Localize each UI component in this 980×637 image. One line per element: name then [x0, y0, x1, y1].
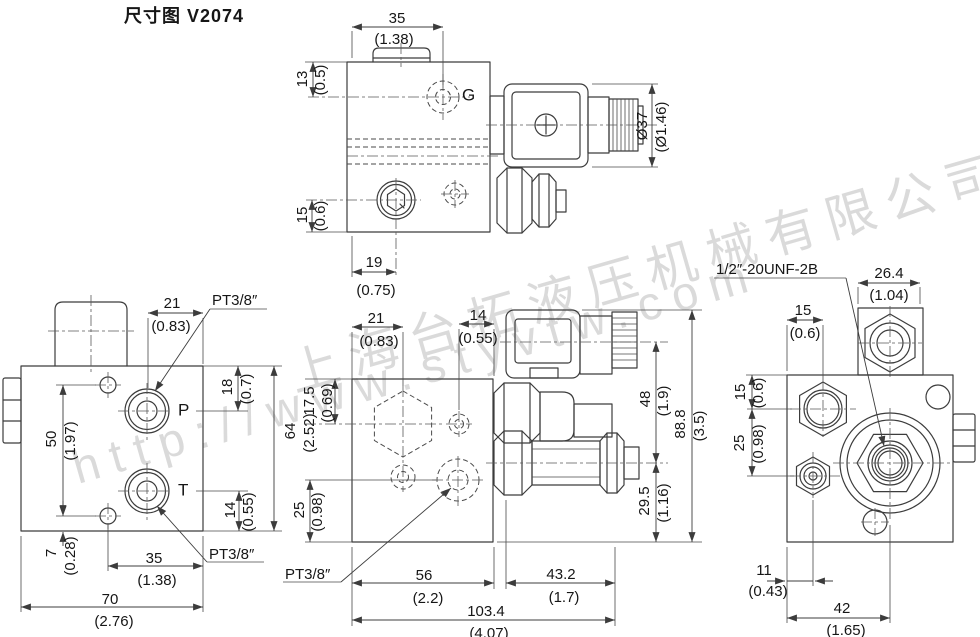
dim-front-7-mm: 7: [43, 549, 60, 557]
dimension-drawing-page: 上海台拓液压机械有限公司 http://www.styvtw.com 尺寸图 V…: [0, 0, 980, 637]
dim-top-15-in: (0.6): [312, 201, 329, 232]
dim-side-48-mm: 48: [637, 391, 654, 408]
dim-side-29-5-mm: 29.5: [636, 486, 653, 515]
cartridge-nuts-top-view: [497, 168, 566, 233]
dim-top-dia37-mm: Ø37: [634, 112, 651, 140]
thread-p-label: PT3/8″: [212, 292, 258, 309]
dim-end-26-4-in: (1.04): [869, 287, 908, 304]
coil-body-side: [494, 383, 612, 443]
dim-side-56-in: (2.2): [413, 590, 444, 607]
dim-end-15-top-in: (0.6): [790, 325, 821, 342]
end-view-coil-block: [858, 308, 923, 375]
dim-side-103-4-mm: 103.4: [467, 603, 505, 620]
corner-ear-circle: [926, 385, 950, 409]
dim-side-21-mm: 21: [368, 310, 385, 327]
dim-front-35-mm: 35: [146, 550, 163, 567]
dim-end-15-side-mm: 15: [732, 384, 749, 401]
dim-front-50-in: (1.97): [62, 421, 79, 460]
hex-plug-lower: [790, 452, 840, 498]
hex-plug-upper: [790, 380, 856, 440]
dim-end-25-mm: 25: [731, 435, 748, 452]
dim-end-15-side-in: (0.6): [750, 378, 767, 409]
dim-side-29-5-in: (1.16): [655, 483, 672, 522]
dim-side-14-mm: 14: [470, 307, 487, 324]
thread-side-port-label: PT3/8″: [285, 566, 331, 583]
dim-side-17-5-in: (0.69): [319, 383, 336, 422]
dim-top-19-mm: 19: [366, 254, 383, 271]
hidden-pilot-circle: [446, 411, 472, 437]
end-view-dimensions: 26.4 (1.04) 1/2″-20UNF-2B 15 (0.6) 15 (0…: [714, 261, 920, 637]
top-view-solenoid: [486, 84, 660, 233]
dim-top-15-mm: 15: [294, 207, 311, 224]
dim-side-17-5-mm: 17.5: [301, 386, 318, 415]
thread-t-label: PT3/8″: [209, 546, 255, 563]
top-view-body: [347, 43, 500, 232]
side-hex-plug-left: [3, 378, 21, 443]
dim-side-21-in: (0.83): [359, 333, 398, 350]
dim-front-14-mm: 14: [222, 502, 239, 519]
dim-side-56-mm: 56: [416, 567, 433, 584]
page-title: 尺寸图 V2074: [124, 5, 244, 26]
dim-front-35-in: (1.38): [137, 572, 176, 589]
dim-side-25-in: (0.98): [309, 492, 326, 531]
dim-side-88-8-mm: 88.8: [672, 409, 689, 438]
dim-side-48-in: (1.9): [655, 386, 672, 417]
dim-end-11-mm: 11: [756, 562, 772, 579]
dim-top-13-in: (0.5): [312, 65, 329, 96]
dim-top-35-mm: 35: [389, 10, 406, 27]
dim-side-14-in: (0.55): [458, 330, 497, 347]
dim-end-42-in: (1.65): [826, 622, 865, 637]
pilot-hidden-circle: [441, 180, 469, 208]
dim-top-35-in: (1.38): [374, 31, 413, 48]
dim-front-70-in: (2.76): [94, 613, 133, 630]
dim-front-21-in: (0.83): [151, 318, 190, 335]
port-p-label: P: [178, 400, 189, 419]
dim-end-25-in: (0.98): [750, 424, 767, 463]
dim-side-25-mm: 25: [291, 502, 308, 519]
dim-front-21-mm: 21: [164, 295, 181, 312]
thread-unf-label: 1/2″-20UNF-2B: [716, 261, 818, 278]
dim-end-11-in: (0.43): [748, 583, 787, 600]
hidden-t-port-circle: [432, 456, 484, 506]
dim-end-42-mm: 42: [834, 600, 851, 617]
dim-front-50-mm: 50: [43, 431, 60, 448]
port-t-label: T: [178, 480, 188, 499]
dim-side-103-4-in: (4.07): [469, 625, 508, 637]
dim-front-14-in: (0.55): [240, 492, 257, 531]
dim-end-26-4-mm: 26.4: [874, 265, 903, 282]
end-view-body-outline: [787, 375, 953, 542]
engineering-drawing-canvas: 上海台拓液压机械有限公司 http://www.styvtw.com 尺寸图 V…: [0, 0, 980, 637]
thread-side-leader: [341, 488, 451, 582]
thread-t-leader: [157, 506, 207, 562]
dim-front-70-mm: 70: [102, 591, 119, 608]
end-view: 26.4 (1.04) 1/2″-20UNF-2B 15 (0.6) 15 (0…: [714, 261, 975, 637]
dim-front-18-in: (0.7): [238, 374, 255, 405]
dim-front-18-mm: 18: [219, 379, 236, 396]
dim-side-43-2-in: (1.7): [549, 589, 580, 606]
dim-front-64-in: (2.52): [301, 413, 318, 452]
cartridge-boss: [833, 408, 950, 520]
top-view-boss-tab: [373, 48, 430, 62]
dim-top-19-in: (0.75): [356, 282, 395, 299]
dim-front-7-in: (0.28): [62, 536, 79, 575]
dim-top-13-mm: 13: [294, 71, 311, 88]
watermark-url-text: http://www.styvtw.com: [66, 246, 765, 493]
dim-side-88-8-in: (3.5): [691, 411, 708, 442]
dim-end-15-top-mm: 15: [795, 302, 812, 319]
mounting-hole-top: [95, 372, 121, 398]
side-hex-plug-right: [953, 414, 975, 462]
port-g-label: G: [462, 85, 475, 104]
dim-side-43-2-mm: 43.2: [546, 566, 575, 583]
dim-front-64-mm: 64: [282, 423, 299, 440]
dim-top-dia37-in: (Ø1.46): [653, 102, 670, 153]
